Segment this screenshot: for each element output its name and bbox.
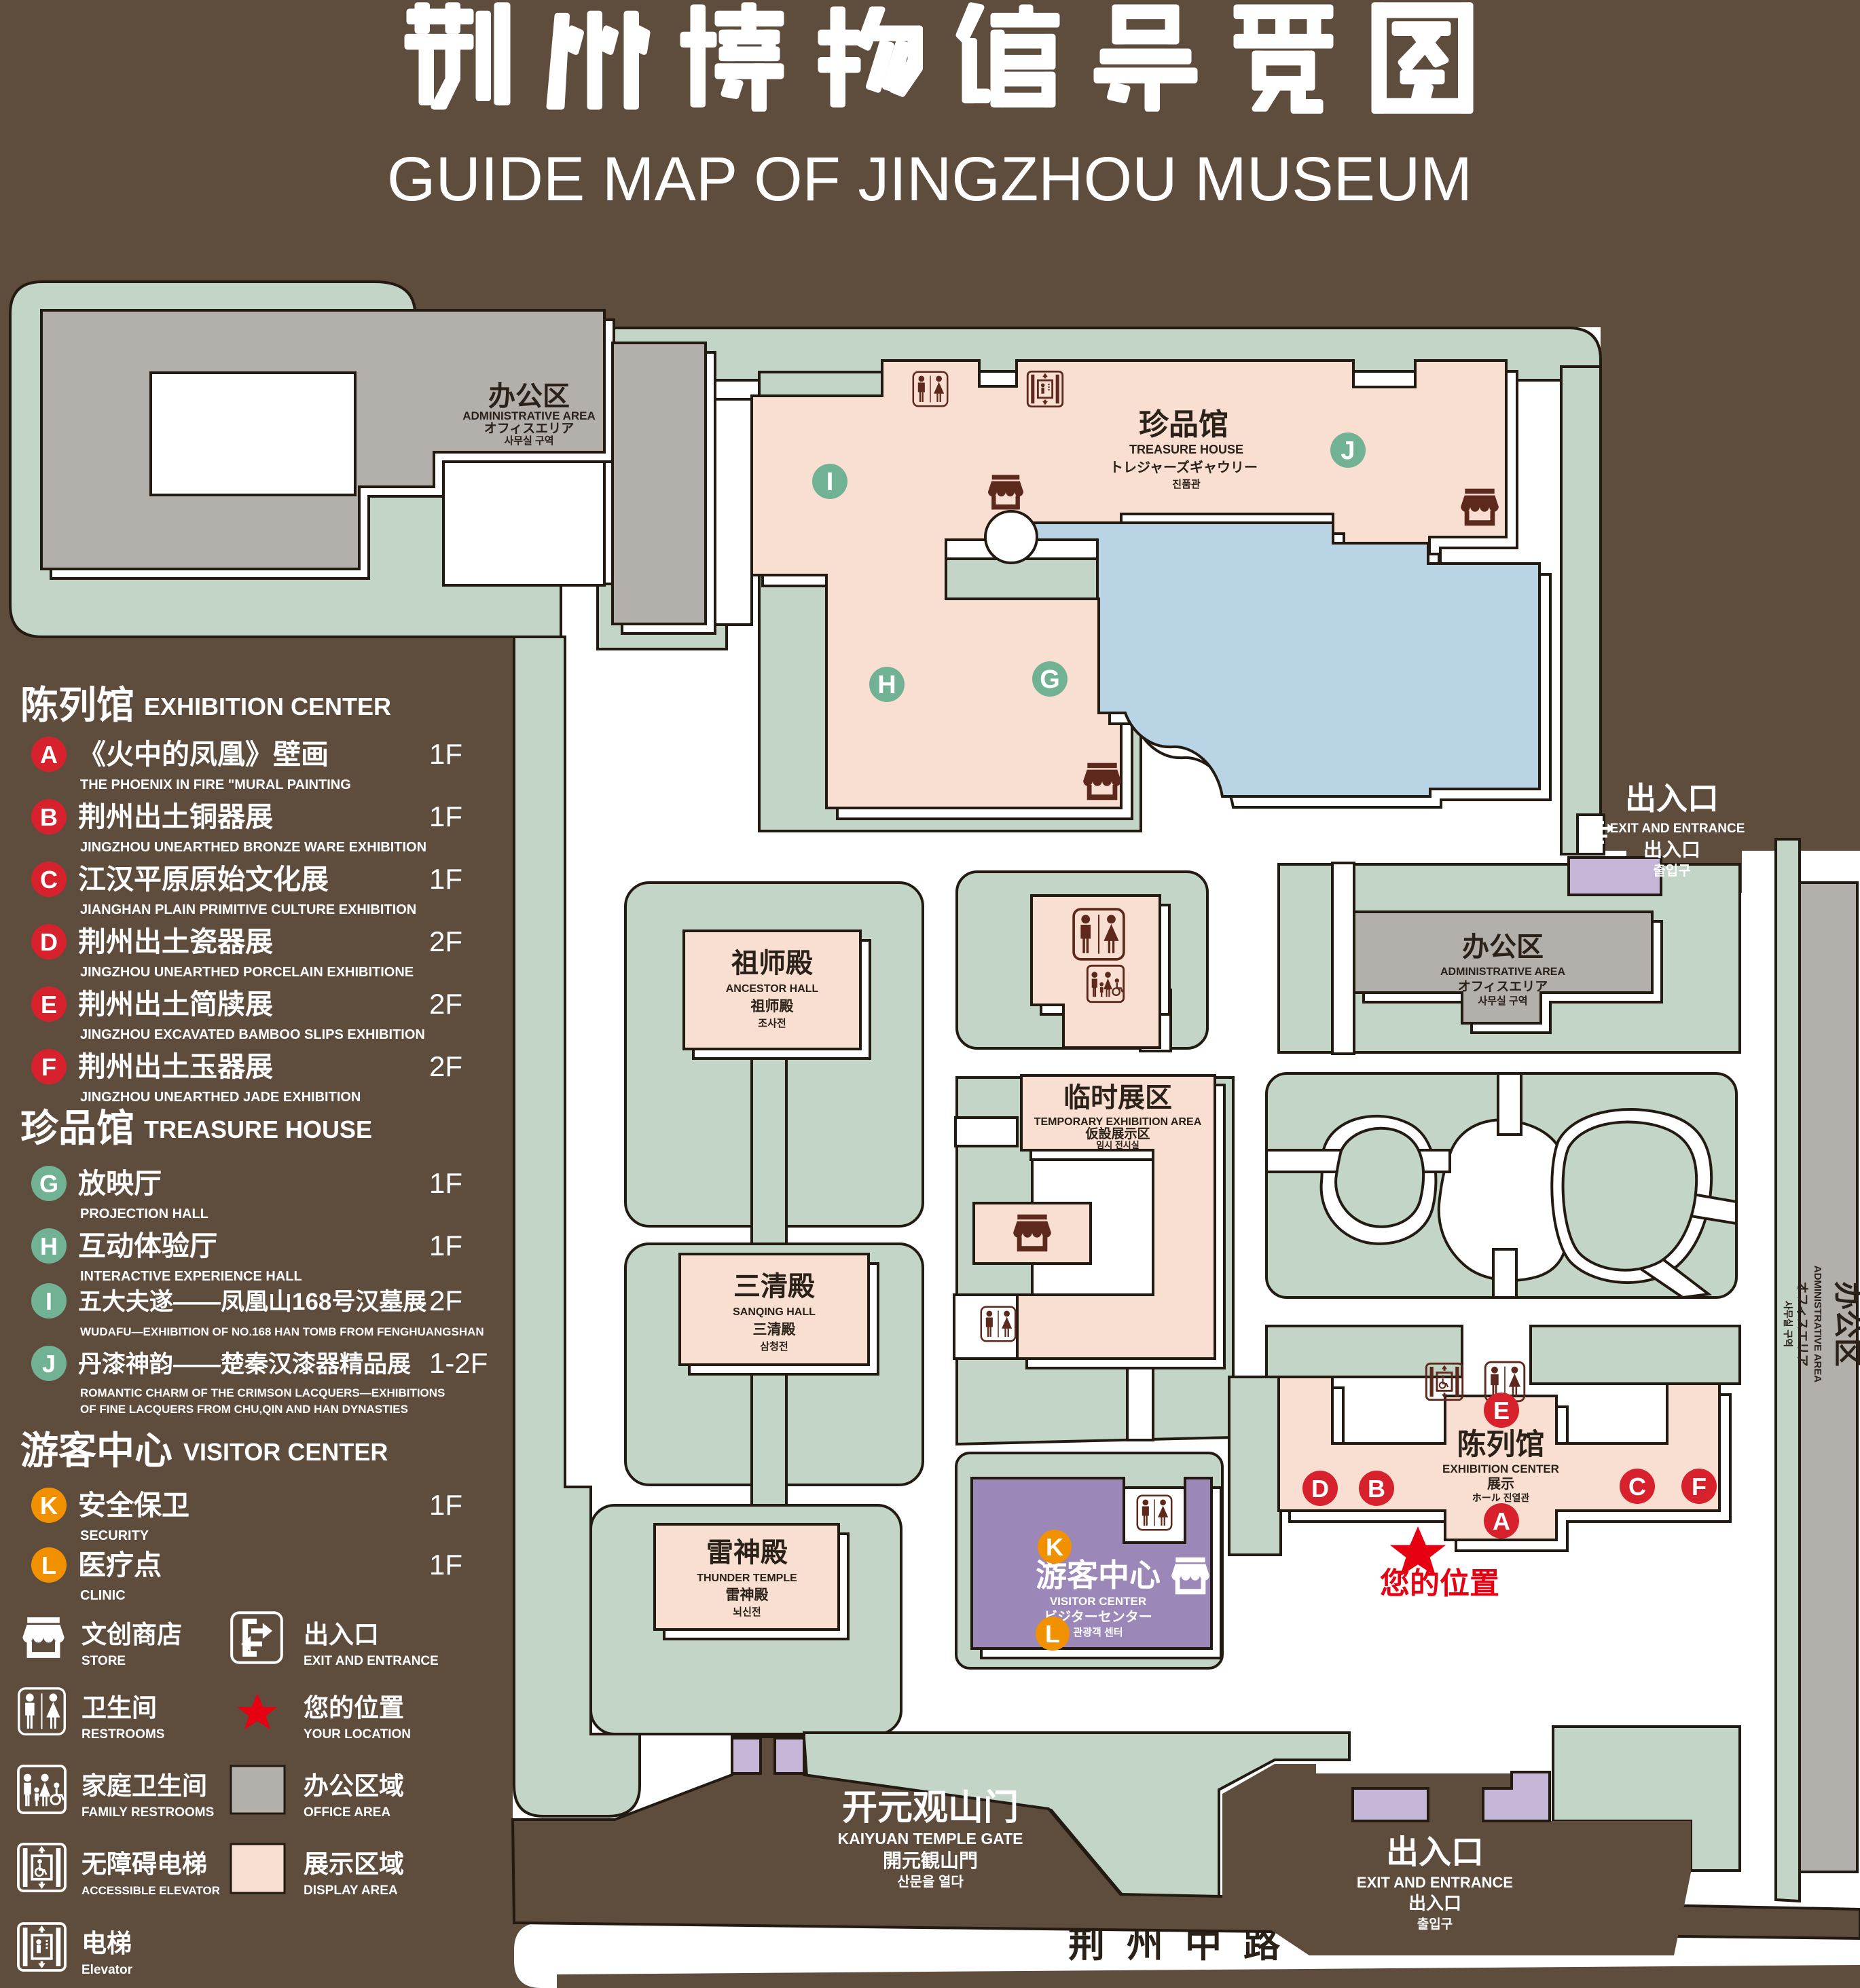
- svg-text:JINGZHOU UNEARTHED BRONZE WARE: JINGZHOU UNEARTHED BRONZE WARE EXHIBITIO…: [80, 840, 426, 855]
- svg-text:互动体验厅: 互动体验厅: [78, 1230, 217, 1262]
- svg-text:办公区: 办公区: [1831, 1281, 1860, 1367]
- svg-text:B: B: [40, 803, 58, 831]
- svg-text:トレジャーズギャウリー: トレジャーズギャウリー: [1110, 459, 1258, 475]
- svg-text:卫生间: 卫生间: [81, 1694, 157, 1722]
- svg-text:開元観山門: 開元観山門: [883, 1850, 978, 1871]
- svg-text:JIANGHAN PLAIN PRIMITIVE CULTU: JIANGHAN PLAIN PRIMITIVE CULTURE EXHIBIT…: [80, 902, 416, 917]
- svg-text:ADMINISTRATIVE AREA: ADMINISTRATIVE AREA: [1440, 966, 1565, 978]
- svg-text:荆州出土简牍展: 荆州出土简牍展: [78, 989, 273, 1020]
- svg-text:TREASURE HOUSE: TREASURE HOUSE: [1129, 443, 1243, 456]
- svg-text:사무실 구역: 사무실 구역: [1478, 995, 1527, 1007]
- svg-text:E: E: [1493, 1397, 1510, 1424]
- svg-text:出入口: 出入口: [304, 1621, 379, 1649]
- svg-text:珍品馆: 珍品馆: [1139, 408, 1228, 441]
- svg-text:祖师殿: 祖师殿: [750, 998, 795, 1014]
- svg-text:临时展区: 临时展区: [1063, 1083, 1172, 1113]
- svg-text:DISPLAY AREA: DISPLAY AREA: [304, 1883, 398, 1898]
- svg-text:THUNDER TEMPLE: THUNDER TEMPLE: [697, 1572, 797, 1584]
- svg-text:VISITOR CENTER: VISITOR CENTER: [183, 1438, 388, 1466]
- svg-text:F: F: [1692, 1473, 1707, 1501]
- svg-text:珍品馆: 珍品馆: [20, 1107, 134, 1149]
- svg-text:您的位置: 您的位置: [304, 1694, 404, 1722]
- svg-text:K: K: [1046, 1533, 1063, 1561]
- svg-text:F: F: [41, 1053, 56, 1081]
- svg-text:출입구: 출입구: [1417, 1917, 1453, 1932]
- svg-text:2F: 2F: [429, 988, 462, 1020]
- svg-text:雷神殿: 雷神殿: [726, 1587, 769, 1603]
- svg-text:医疗点: 医疗点: [78, 1549, 162, 1581]
- svg-text:STORE: STORE: [81, 1654, 126, 1668]
- svg-text:E: E: [41, 991, 57, 1018]
- svg-text:家庭卫生间: 家庭卫生间: [81, 1771, 207, 1800]
- svg-text:ホール 진열관: ホール 진열관: [1472, 1492, 1530, 1503]
- svg-text:电梯: 电梯: [81, 1930, 132, 1957]
- svg-text:2F: 2F: [429, 925, 462, 957]
- svg-text:2F: 2F: [429, 1285, 462, 1317]
- svg-text:ANCESTOR HALL: ANCESTOR HALL: [726, 983, 819, 995]
- svg-text:オフィスエリア: オフィスエリア: [1458, 980, 1548, 994]
- svg-text:VISITOR CENTER: VISITOR CENTER: [1050, 1595, 1146, 1608]
- svg-text:EXHIBITION CENTER: EXHIBITION CENTER: [1442, 1462, 1559, 1475]
- svg-text:PROJECTION HALL: PROJECTION HALL: [80, 1207, 208, 1221]
- svg-text:五大夫遂——凤凰山168号汉墓展: 五大夫遂——凤凰山168号汉墓展: [78, 1289, 426, 1315]
- svg-text:出入口: 出入口: [1625, 781, 1719, 816]
- svg-text:游客中心: 游客中心: [20, 1429, 172, 1472]
- svg-text:1F: 1F: [429, 863, 462, 895]
- svg-text:C: C: [40, 866, 58, 894]
- svg-text:G: G: [1040, 665, 1060, 694]
- svg-text:사무실 구역: 사무실 구역: [1783, 1301, 1793, 1347]
- svg-text:雷神殿: 雷神殿: [706, 1538, 788, 1568]
- svg-text:J: J: [42, 1350, 56, 1378]
- svg-text:EXIT AND ENTRANCE: EXIT AND ENTRANCE: [1610, 822, 1745, 836]
- svg-text:ACCESSIBLE ELEVATOR: ACCESSIBLE ELEVATOR: [81, 1884, 220, 1897]
- svg-text:放映厅: 放映厅: [78, 1168, 162, 1199]
- svg-text:임시 전시실: 임시 전시실: [1096, 1140, 1139, 1150]
- svg-text:荆州出土瓷器展: 荆州出土瓷器展: [78, 926, 273, 957]
- svg-text:D: D: [1311, 1475, 1329, 1503]
- svg-text:オフィスエリア: オフィスエリア: [1795, 1281, 1809, 1367]
- svg-text:H: H: [877, 671, 896, 699]
- svg-text:OF FINE LACQUERS FROM CHU,QIN: OF FINE LACQUERS FROM CHU,QIN AND HAN DY…: [80, 1403, 408, 1416]
- svg-text:L: L: [1045, 1620, 1060, 1648]
- svg-text:OFFICE AREA: OFFICE AREA: [304, 1805, 390, 1820]
- svg-text:WUDAFU—EXHIBITION OF NO.168 HA: WUDAFU—EXHIBITION OF NO.168 HAN TOMB FRO…: [80, 1325, 484, 1338]
- svg-text:YOUR LOCATION: YOUR LOCATION: [304, 1727, 411, 1742]
- svg-text:A: A: [40, 741, 58, 769]
- svg-text:《火中的凤凰》壁画: 《火中的凤凰》壁画: [78, 739, 329, 770]
- svg-text:无障碍电梯: 无障碍电梯: [81, 1850, 207, 1878]
- svg-text:K: K: [40, 1492, 58, 1520]
- svg-text:Elevator: Elevator: [81, 1963, 133, 1977]
- svg-text:EXHIBITION CENTER: EXHIBITION CENTER: [144, 693, 391, 720]
- svg-text:出入口: 出入口: [1408, 1893, 1461, 1913]
- svg-text:丹漆神韵——楚秦汉漆器精品展: 丹漆神韵——楚秦汉漆器精品展: [78, 1351, 411, 1378]
- svg-text:展示区域: 展示区域: [304, 1850, 404, 1878]
- svg-text:ADMINISTRATIVE AREA: ADMINISTRATIVE AREA: [462, 409, 596, 422]
- svg-text:出入口: 出入口: [1386, 1835, 1484, 1871]
- svg-text:三清殿: 三清殿: [733, 1272, 815, 1302]
- svg-text:荆州出土铜器展: 荆州出土铜器展: [78, 801, 273, 832]
- svg-text:1F: 1F: [429, 738, 462, 770]
- svg-text:仮設展示区: 仮設展示区: [1084, 1126, 1150, 1141]
- svg-text:JINGZHOU UNEARTHED PORCELAIN E: JINGZHOU UNEARTHED PORCELAIN EXHIBITIONE: [80, 965, 414, 980]
- svg-text:祖师殿: 祖师殿: [731, 949, 813, 978]
- svg-text:사무실 구역: 사무실 구역: [504, 435, 553, 447]
- svg-text:TREASURE HOUSE: TREASURE HOUSE: [144, 1116, 372, 1143]
- svg-text:출입구: 출입구: [1653, 863, 1690, 879]
- svg-text:オフィスエリア: オフィスエリア: [484, 422, 575, 436]
- svg-text:开元观山门: 开元观山门: [842, 1788, 1019, 1828]
- svg-text:A: A: [1493, 1507, 1510, 1535]
- svg-text:文创商店: 文创商店: [81, 1621, 182, 1649]
- svg-text:陈列馆: 陈列馆: [1457, 1429, 1545, 1461]
- svg-text:B: B: [1368, 1475, 1385, 1503]
- svg-text:산문을 열다: 산문을 열다: [897, 1874, 964, 1890]
- svg-text:SANQING HALL: SANQING HALL: [733, 1306, 816, 1318]
- svg-text:陈列馆: 陈列馆: [20, 684, 134, 726]
- svg-text:FAMILY RESTROOMS: FAMILY RESTROOMS: [81, 1805, 214, 1820]
- svg-text:GUIDE MAP OF JINGZHOU MUSEUM: GUIDE MAP OF JINGZHOU MUSEUM: [387, 145, 1472, 214]
- svg-text:展示: 展示: [1487, 1477, 1514, 1492]
- svg-text:뇌신전: 뇌신전: [733, 1606, 761, 1618]
- svg-text:1F: 1F: [429, 800, 462, 832]
- svg-text:삼청전: 삼청전: [760, 1341, 788, 1352]
- svg-text:SECURITY: SECURITY: [80, 1528, 149, 1543]
- svg-text:1F: 1F: [429, 1167, 462, 1199]
- svg-text:EXIT AND ENTRANCE: EXIT AND ENTRANCE: [304, 1654, 439, 1668]
- svg-text:THE PHOENIX IN FIRE "MURAL PAI: THE PHOENIX IN FIRE "MURAL PAINTING: [80, 777, 351, 792]
- svg-text:江汉平原原始文化展: 江汉平原原始文化展: [78, 864, 329, 895]
- svg-text:三清殿: 三清殿: [753, 1321, 797, 1338]
- svg-text:您的位置: 您的位置: [1380, 1567, 1499, 1600]
- svg-text:ROMANTIC CHARM OF THE CRIMSON: ROMANTIC CHARM OF THE CRIMSON LACQUERS—E…: [80, 1386, 445, 1399]
- svg-text:1F: 1F: [429, 1549, 462, 1581]
- svg-text:D: D: [40, 928, 58, 956]
- svg-text:1-2F: 1-2F: [429, 1347, 488, 1379]
- svg-text:EXIT AND ENTRANCE: EXIT AND ENTRANCE: [1357, 1874, 1513, 1891]
- svg-text:JINGZHOU EXCAVATED BAMBOO SLIP: JINGZHOU EXCAVATED BAMBOO SLIPS EXHIBITI…: [80, 1027, 425, 1042]
- svg-text:2F: 2F: [429, 1050, 462, 1082]
- svg-text:1F: 1F: [429, 1489, 462, 1521]
- svg-text:荆州出土玉器展: 荆州出土玉器展: [78, 1051, 273, 1082]
- svg-text:出入口: 出入口: [1643, 839, 1700, 860]
- svg-text:L: L: [41, 1551, 56, 1579]
- svg-text:办公区域: 办公区域: [304, 1772, 404, 1800]
- svg-text:관광객 센터: 관광객 센터: [1073, 1626, 1123, 1638]
- svg-text:진품관: 진품관: [1172, 479, 1201, 490]
- svg-text:RESTROOMS: RESTROOMS: [81, 1727, 164, 1742]
- svg-text:ADMINISTRATIVE AREA: ADMINISTRATIVE AREA: [1812, 1266, 1823, 1383]
- svg-text:H: H: [40, 1232, 58, 1260]
- svg-text:1F: 1F: [429, 1230, 462, 1262]
- svg-text:C: C: [1628, 1473, 1646, 1501]
- svg-text:I: I: [45, 1287, 52, 1315]
- svg-text:INTERACTIVE EXPERIENCE HALL: INTERACTIVE EXPERIENCE HALL: [80, 1269, 302, 1284]
- svg-text:JINGZHOU UNEARTHED JADE EXHIBI: JINGZHOU UNEARTHED JADE EXHIBITION: [80, 1090, 361, 1105]
- svg-text:办公区: 办公区: [488, 382, 570, 411]
- svg-text:安全保卫: 安全保卫: [78, 1490, 189, 1521]
- svg-text:KAIYUAN TEMPLE GATE: KAIYUAN TEMPLE GATE: [837, 1830, 1023, 1847]
- svg-text:J: J: [1341, 437, 1355, 465]
- svg-text:TEMPORARY EXHIBITION AREA: TEMPORARY EXHIBITION AREA: [1034, 1116, 1202, 1128]
- svg-text:办公区: 办公区: [1462, 932, 1544, 962]
- svg-text:I: I: [826, 468, 834, 496]
- svg-text:G: G: [39, 1170, 58, 1198]
- svg-text:조사전: 조사전: [758, 1018, 786, 1029]
- svg-text:CLINIC: CLINIC: [80, 1588, 126, 1603]
